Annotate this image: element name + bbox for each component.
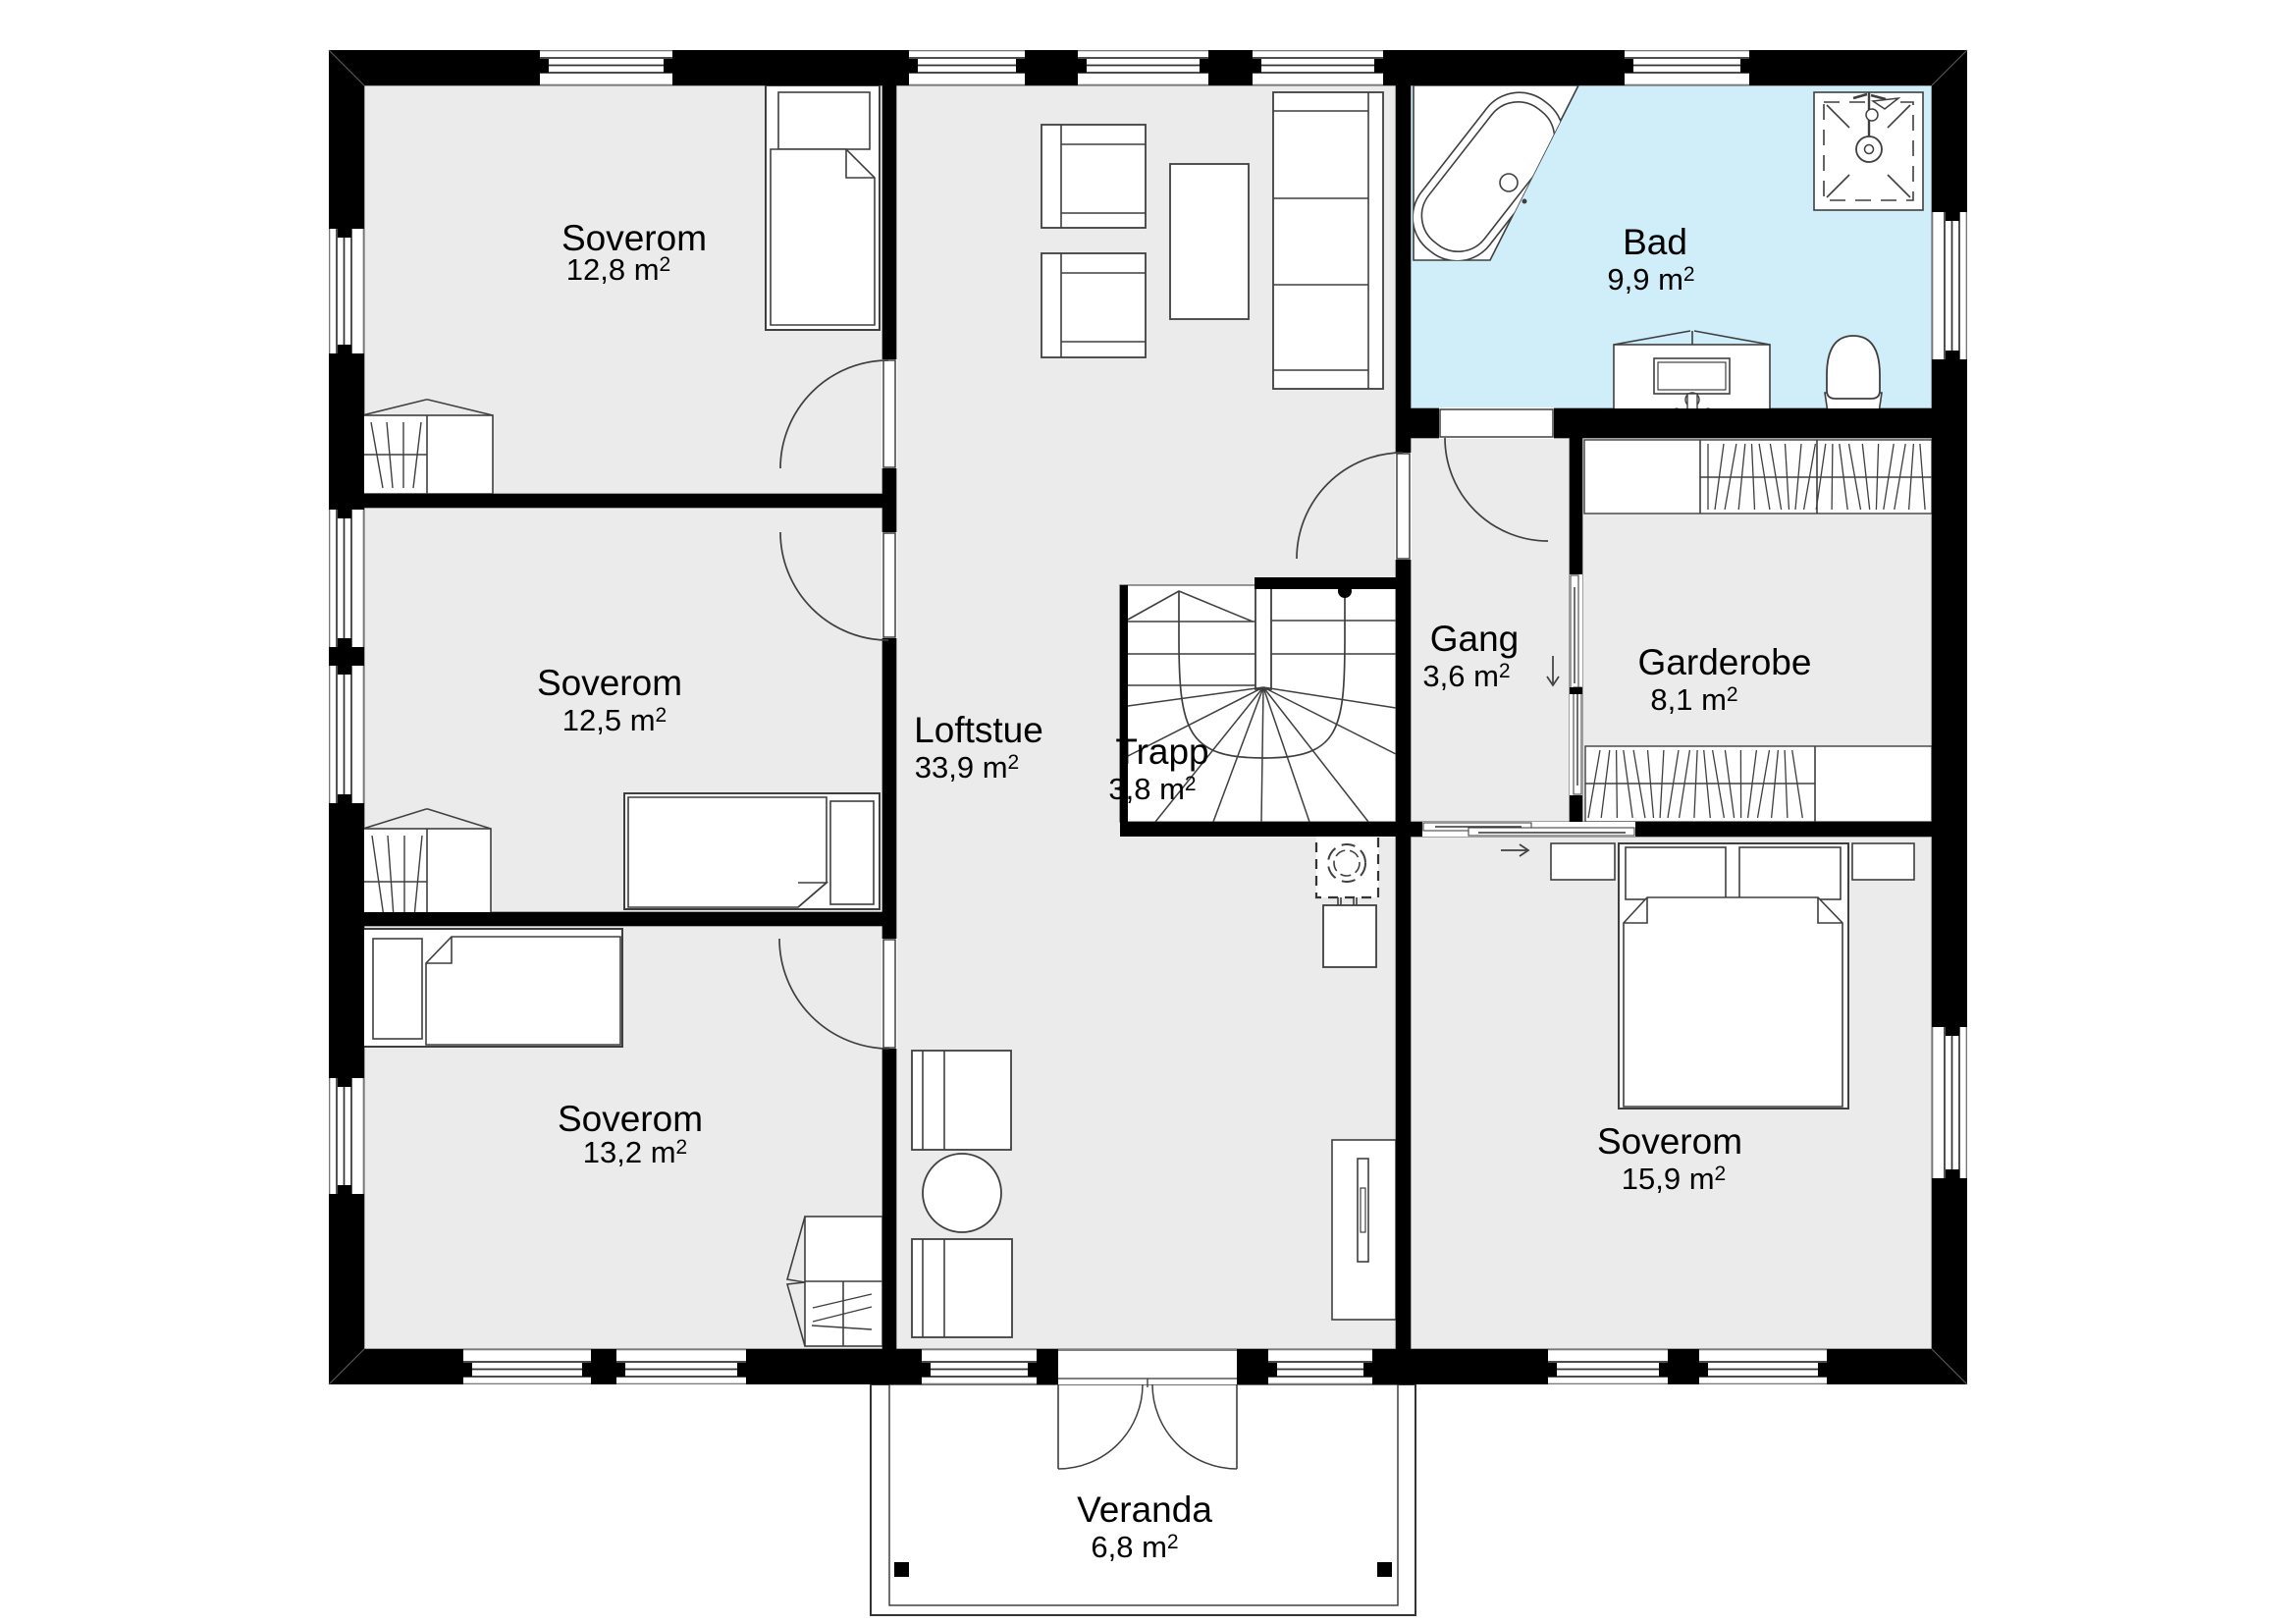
- svg-text:Soverom: Soverom: [558, 1099, 703, 1139]
- svg-text:12,8 m2: 12,8 m2: [566, 252, 670, 287]
- svg-text:12,5 m2: 12,5 m2: [562, 703, 667, 737]
- svg-text:33,9 m2: 33,9 m2: [915, 750, 1019, 785]
- svg-text:8,1 m2: 8,1 m2: [1650, 682, 1737, 717]
- svg-text:3,6 m2: 3,6 m2: [1422, 659, 1510, 693]
- svg-text:Garderobe: Garderobe: [1638, 642, 1812, 682]
- svg-text:15,9 m2: 15,9 m2: [1622, 1162, 1726, 1196]
- svg-text:3,8 m2: 3,8 m2: [1108, 772, 1196, 806]
- svg-text:Soverom: Soverom: [537, 663, 682, 703]
- svg-text:Loftstue: Loftstue: [914, 710, 1043, 750]
- svg-text:13,2 m2: 13,2 m2: [583, 1135, 687, 1169]
- svg-text:Bad: Bad: [1623, 222, 1687, 262]
- svg-text:Veranda: Veranda: [1077, 1489, 1212, 1530]
- svg-text:9,9 m2: 9,9 m2: [1607, 262, 1694, 297]
- svg-text:6,8 m2: 6,8 m2: [1091, 1530, 1178, 1564]
- svg-text:Gang: Gang: [1430, 619, 1520, 659]
- svg-text:Trapp: Trapp: [1115, 731, 1208, 772]
- svg-text:Soverom: Soverom: [1597, 1121, 1742, 1162]
